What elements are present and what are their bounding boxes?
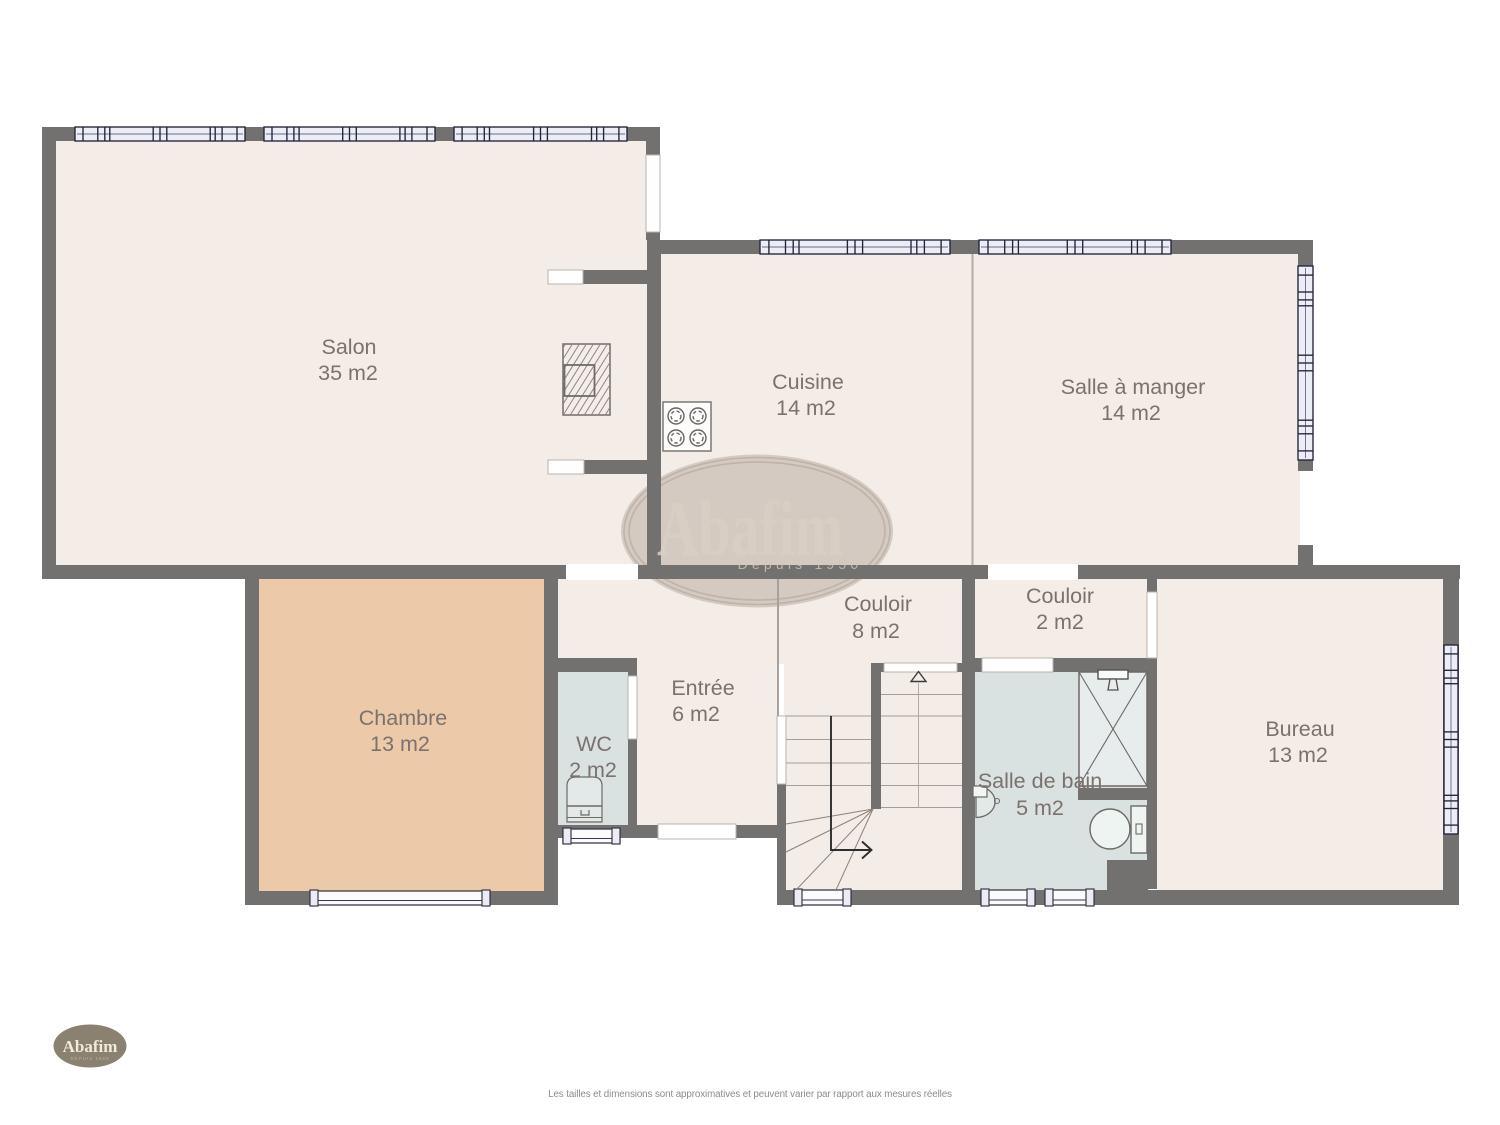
svg-text:5 m2: 5 m2	[1016, 796, 1064, 820]
svg-text:Cuisine: Cuisine	[772, 370, 844, 394]
svg-text:Depuis 1950: Depuis 1950	[738, 556, 863, 572]
svg-text:14 m2: 14 m2	[1101, 401, 1161, 425]
svg-text:Entrée: Entrée	[671, 676, 734, 700]
svg-text:6 m2: 6 m2	[672, 702, 720, 726]
svg-text:14 m2: 14 m2	[776, 396, 836, 420]
svg-text:Salle de bain: Salle de bain	[978, 769, 1102, 793]
svg-text:2 m2: 2 m2	[569, 758, 617, 782]
svg-text:35 m2: 35 m2	[318, 361, 378, 385]
svg-text:Chambre: Chambre	[359, 706, 447, 730]
svg-text:Abafim: Abafim	[63, 1037, 118, 1056]
svg-text:13 m2: 13 m2	[1268, 743, 1328, 767]
svg-text:Couloir: Couloir	[844, 592, 912, 616]
svg-text:DEPUIS 1950: DEPUIS 1950	[70, 1056, 109, 1061]
svg-text:2 m2: 2 m2	[1036, 610, 1084, 634]
svg-text:WC: WC	[576, 732, 612, 756]
svg-text:8 m2: 8 m2	[852, 619, 900, 643]
svg-text:Les tailles et dimensions sont: Les tailles et dimensions sont approxima…	[548, 1089, 952, 1100]
svg-text:Bureau: Bureau	[1265, 717, 1334, 741]
svg-text:Salon: Salon	[322, 335, 377, 359]
svg-text:13 m2: 13 m2	[370, 732, 430, 756]
svg-text:Couloir: Couloir	[1026, 584, 1094, 608]
svg-text:Salle à manger: Salle à manger	[1061, 375, 1206, 399]
